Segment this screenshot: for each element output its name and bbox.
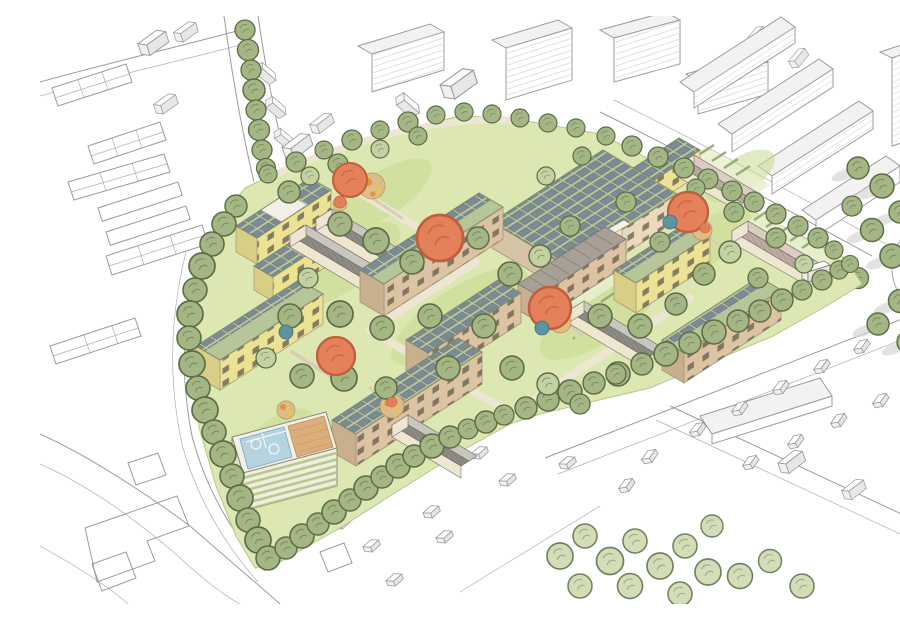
- orange-tree: [417, 215, 463, 261]
- play-area: [277, 401, 295, 419]
- masterplan-illustration: [40, 16, 900, 604]
- teal-tree: [663, 215, 677, 229]
- context-long-building: [700, 378, 832, 444]
- teal-tree: [279, 325, 293, 339]
- masterplan-canvas: [40, 16, 900, 604]
- woodland-patch: [547, 515, 814, 604]
- orange-tree: [333, 163, 367, 197]
- site-layer: [177, 103, 862, 570]
- orange-tree: [529, 287, 571, 329]
- teal-tree: [535, 321, 549, 335]
- orange-tree: [317, 337, 355, 375]
